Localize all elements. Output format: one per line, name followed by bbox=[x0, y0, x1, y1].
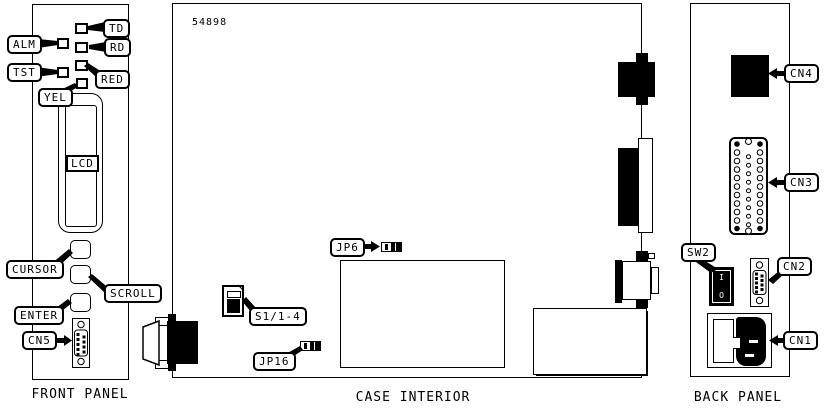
edge-connector-dsub-face bbox=[143, 321, 159, 365]
cn5-pins bbox=[75, 321, 88, 364]
dip-switch-notch bbox=[238, 285, 244, 291]
cn3-pins bbox=[734, 139, 763, 235]
callout-scroll: SCROLL bbox=[104, 284, 162, 303]
callout-jp6: JP6 bbox=[330, 238, 365, 257]
callout-yel: YEL bbox=[38, 88, 73, 107]
callout-sw2: SW2 bbox=[681, 243, 716, 262]
pointer-and-pin-overlay bbox=[0, 0, 824, 410]
callout-rd: RD bbox=[104, 38, 131, 57]
callout-cn3: CN3 bbox=[784, 173, 819, 192]
callout-cursor: CURSOR bbox=[6, 260, 64, 279]
callout-cn2: CN2 bbox=[777, 257, 812, 276]
callout-cn5: CN5 bbox=[22, 331, 57, 350]
lcd-tag: LCD bbox=[66, 155, 99, 172]
callout-red: RED bbox=[95, 70, 130, 89]
callout-s1: S1/1-4 bbox=[249, 307, 307, 326]
callout-enter: ENTER bbox=[14, 306, 64, 325]
callout-td: TD bbox=[103, 19, 130, 38]
hardware-diagram: ALM TST TD RD RED YEL LCD CURSOR SCROLL … bbox=[0, 0, 824, 410]
callout-tst: TST bbox=[7, 63, 42, 82]
callout-jp16: JP16 bbox=[253, 352, 296, 371]
callout-cn4: CN4 bbox=[784, 64, 819, 83]
callout-alm: ALM bbox=[7, 35, 42, 54]
callout-cn1: CN1 bbox=[783, 331, 818, 350]
cn2-pins bbox=[753, 262, 766, 304]
